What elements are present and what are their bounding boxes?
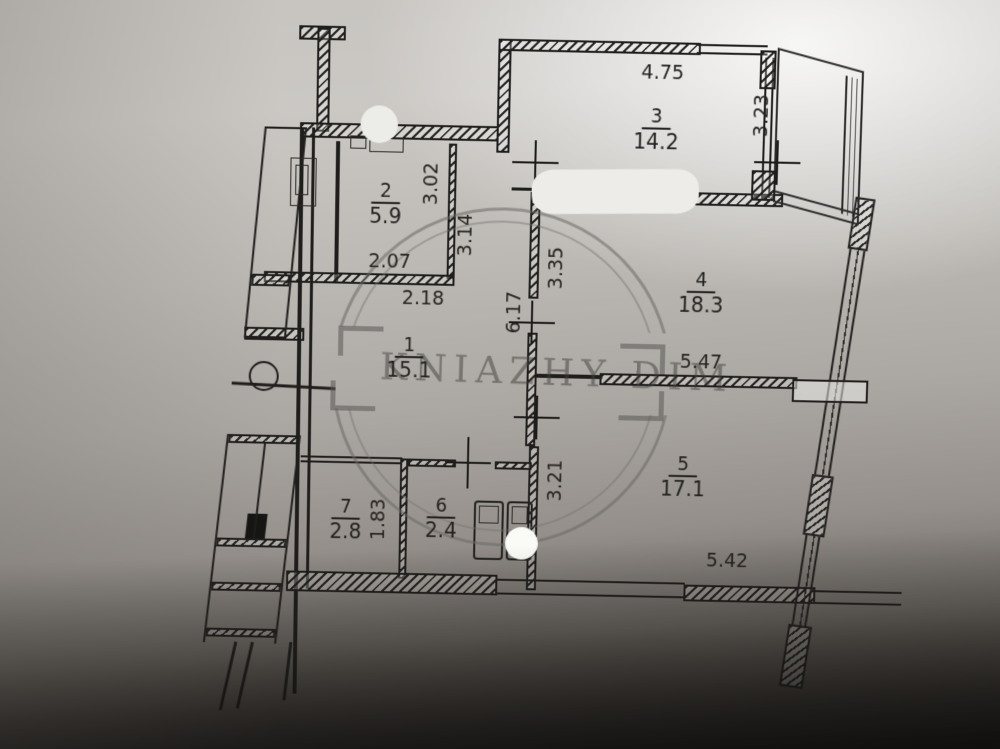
window — [814, 590, 902, 606]
shaft-rung — [211, 582, 281, 592]
wall — [498, 39, 701, 56]
watermark-arc-bottom-inner — [342, 409, 657, 554]
room-label-1: 1 15.1 — [386, 334, 432, 383]
wall — [316, 28, 331, 132]
window — [496, 579, 685, 599]
room-number: 3 — [642, 105, 671, 130]
duct-box — [290, 157, 317, 206]
room-area: 14.2 — [633, 129, 679, 154]
floor-plan-photo: KNIAZHY DIM 1 15.1 2 5.9 3 14.2 4 18.3 5… — [0, 0, 1000, 749]
shaft-lower — [203, 434, 301, 644]
room-label-5: 5 17.1 — [660, 453, 706, 501]
watermark-bracket — [338, 326, 383, 357]
wall-pier — [751, 170, 776, 201]
shaft-rung — [216, 538, 287, 548]
duct-inner — [295, 165, 308, 196]
wall — [286, 570, 498, 595]
room-label-4: 4 18.3 — [678, 269, 725, 318]
wall-pier — [803, 474, 834, 538]
dim-label: 3.23 — [748, 94, 774, 138]
wall-pier — [779, 624, 812, 689]
window — [697, 44, 768, 56]
room-area: 5.9 — [369, 204, 402, 229]
stair-line — [219, 641, 237, 710]
right-exterior-wall — [779, 197, 882, 691]
room-label-2: 2 5.9 — [369, 179, 402, 228]
room-area: 17.1 — [660, 477, 705, 502]
whiteout-blob — [532, 169, 699, 214]
dim-label: 5.47 — [680, 349, 723, 374]
shaft-rung — [206, 628, 276, 638]
room-label-3: 3 14.2 — [633, 105, 680, 155]
stair-line — [282, 642, 291, 700]
room-label-6: 6 2.4 — [425, 494, 458, 542]
dim-label: 3.14 — [452, 213, 477, 256]
room-label-7: 7 2.8 — [329, 495, 362, 543]
dim-label: 3.35 — [543, 246, 568, 289]
balcony — [773, 48, 864, 226]
wall — [496, 39, 512, 153]
watermark-bracket — [330, 380, 375, 411]
room-number: 1 — [395, 334, 424, 359]
dim-label: 6.17 — [501, 291, 526, 334]
floor-plan: KNIAZHY DIM 1 15.1 2 5.9 3 14.2 4 18.3 5… — [0, 0, 1000, 749]
stair-line — [236, 642, 254, 709]
room-number: 2 — [371, 179, 400, 204]
room-number: 7 — [331, 495, 359, 519]
balcony-glazing — [841, 76, 861, 218]
room-area: 18.3 — [678, 293, 724, 318]
dim-label: 3.21 — [542, 459, 567, 501]
dim-label: 4.75 — [641, 59, 684, 84]
room-area: 15.1 — [386, 358, 431, 383]
room-area: 2.4 — [425, 518, 457, 542]
window — [792, 535, 821, 626]
room-number: 5 — [669, 453, 698, 477]
wall-pier — [759, 50, 776, 89]
duct-box — [350, 135, 366, 149]
section-line — [232, 382, 336, 391]
dim-label: 5.42 — [706, 548, 749, 572]
dim-label: 3.02 — [418, 162, 443, 205]
room-number: 6 — [427, 495, 456, 519]
dim-label: 1.83 — [365, 498, 390, 540]
window — [814, 249, 865, 476]
dim-label: 2.18 — [402, 285, 445, 310]
doorway-block — [792, 379, 869, 403]
shaft-divider — [251, 274, 290, 287]
room-number: 4 — [687, 269, 716, 294]
dim-label: 2.07 — [368, 248, 411, 273]
room-area: 2.8 — [329, 519, 361, 543]
